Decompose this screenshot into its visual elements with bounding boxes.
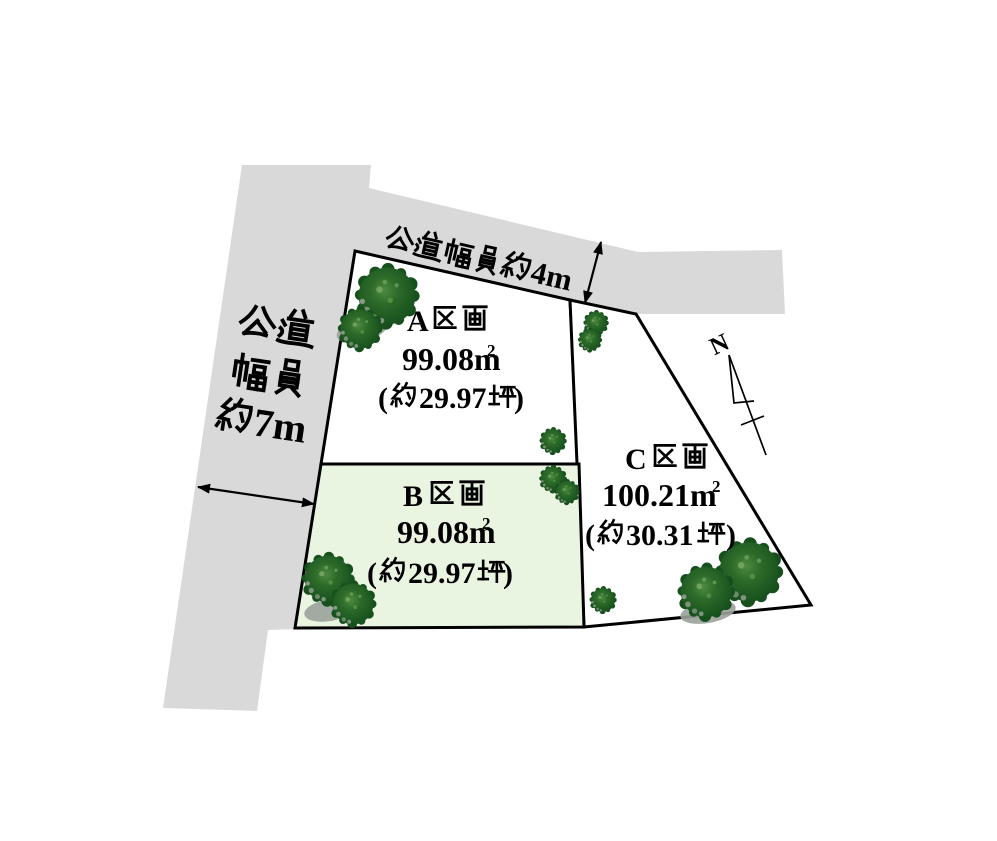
svg-text:7m: 7m (250, 399, 309, 451)
svg-text:29.97: 29.97 (419, 382, 487, 415)
svg-text:B: B (403, 480, 423, 513)
svg-text:2: 2 (487, 341, 496, 360)
svg-text:C: C (625, 443, 647, 476)
svg-text:(: ( (367, 557, 377, 590)
svg-text:30.31: 30.31 (626, 519, 694, 552)
svg-text:A: A (407, 305, 429, 338)
svg-text:100.21m: 100.21m (602, 477, 717, 513)
svg-text:): ) (726, 519, 736, 552)
svg-text:): ) (514, 382, 524, 415)
svg-text:29.97: 29.97 (408, 557, 476, 590)
svg-text:): ) (503, 557, 513, 590)
svg-text:2: 2 (482, 514, 491, 533)
svg-text:2: 2 (712, 477, 721, 496)
svg-text:(: ( (585, 519, 595, 552)
svg-text:(: ( (378, 382, 388, 415)
